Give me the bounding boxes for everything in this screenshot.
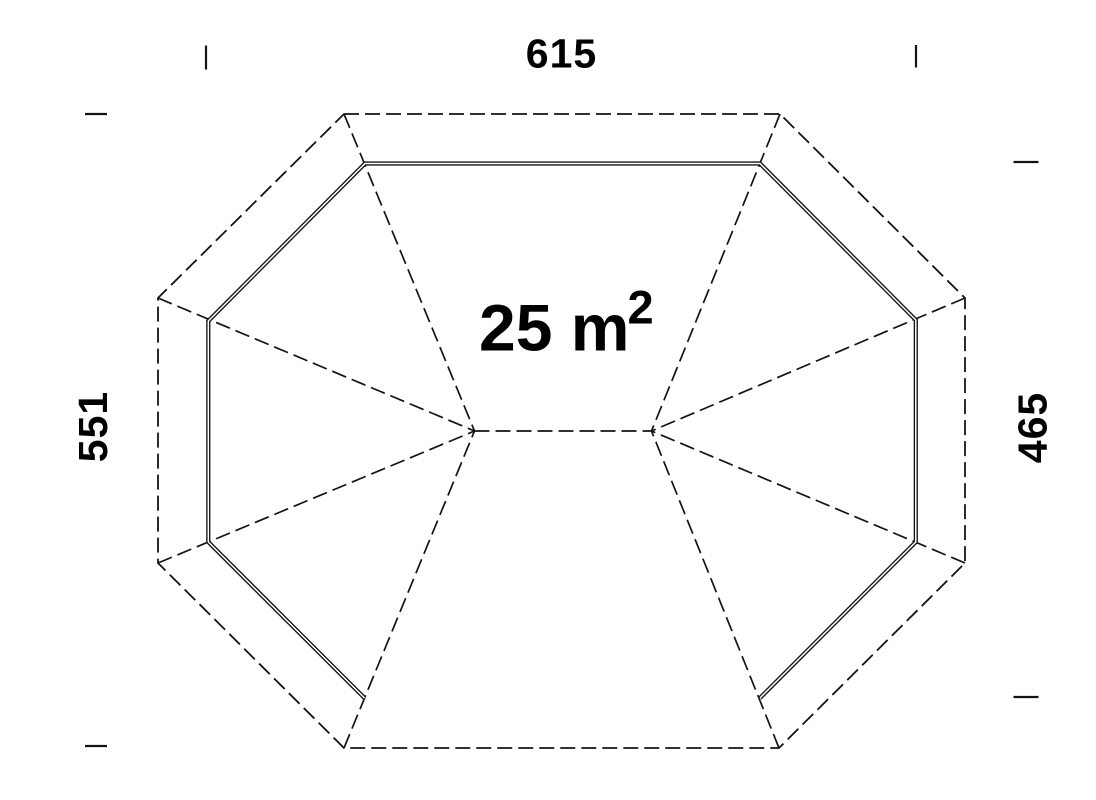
svg-text:25 m2: 25 m2 bbox=[479, 281, 654, 365]
svg-text:615: 615 bbox=[526, 30, 597, 76]
svg-text:465: 465 bbox=[1010, 392, 1056, 463]
svg-text:551: 551 bbox=[70, 391, 116, 462]
